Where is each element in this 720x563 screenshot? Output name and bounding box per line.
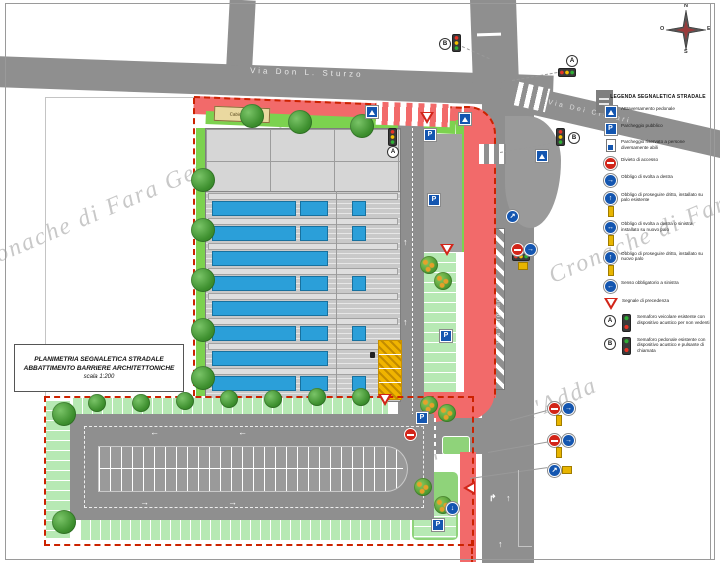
sheet-margin-line xyxy=(710,3,711,559)
sheet-border xyxy=(5,3,715,560)
site-plan-sheet: Cronache di Fara Gera d'Adda Cronache di… xyxy=(0,0,720,563)
